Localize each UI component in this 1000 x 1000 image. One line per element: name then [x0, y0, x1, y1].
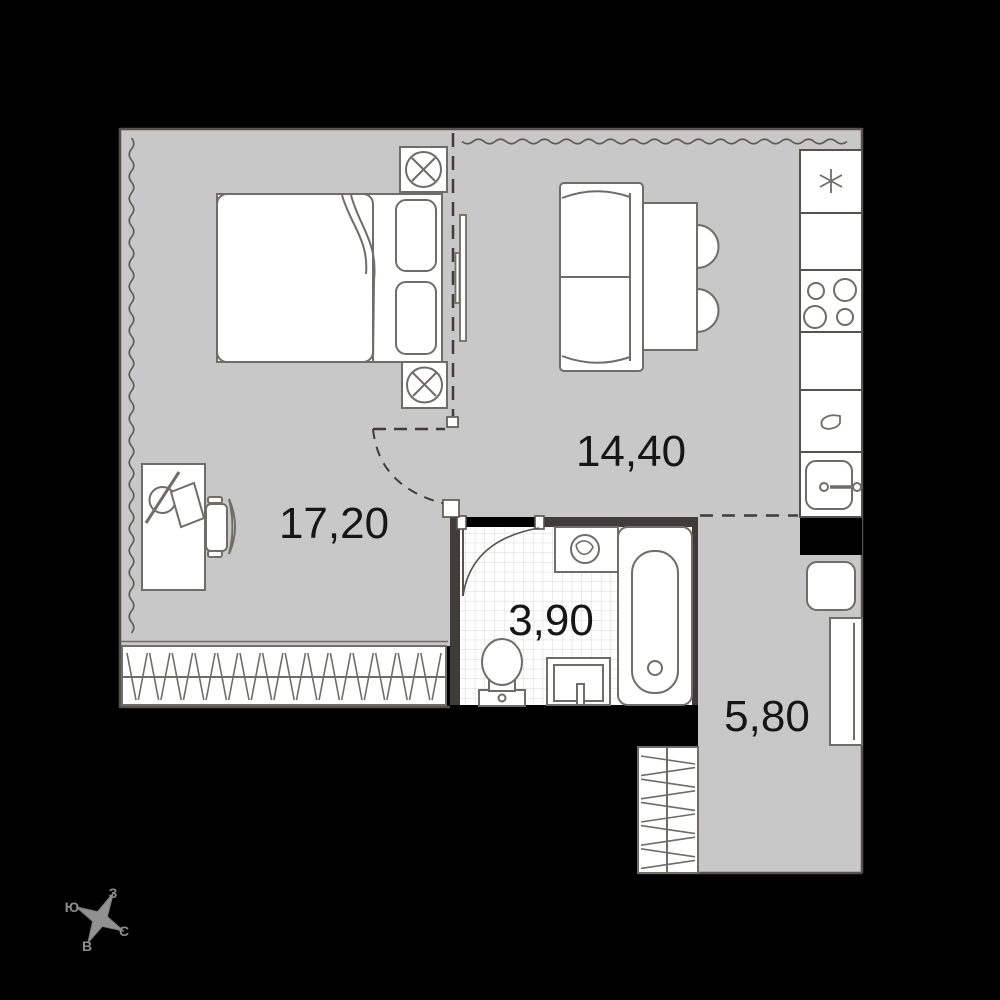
compass-west-label: З — [109, 885, 118, 901]
washing-machine-drum-icon — [571, 535, 599, 563]
hall-wardrobe — [830, 618, 862, 745]
cooktop — [800, 270, 862, 332]
bathtub — [618, 527, 692, 705]
room-label-bathroom: 3,90 — [508, 596, 594, 645]
nightstand-top — [400, 147, 447, 192]
floor-plan-drawing: 17,20 14,40 3,90 5,80 З Ю С В — [0, 0, 1000, 1000]
washing-machine — [555, 527, 618, 572]
compass-star-icon — [64, 880, 138, 955]
closet-hatched — [121, 642, 448, 706]
nightstand-bottom — [402, 362, 447, 408]
floor-plan-canvas: 17,20 14,40 3,90 5,80 З Ю С В — [0, 0, 1000, 1000]
dining-table — [643, 203, 697, 350]
counter-cabinet — [800, 332, 862, 390]
sofa — [560, 183, 643, 371]
desk — [142, 464, 205, 590]
room-label-bedroom-living: 17,20 — [279, 499, 389, 548]
bed — [217, 194, 442, 362]
compass-north-label: С — [119, 923, 129, 939]
hall-closet-hatched — [638, 747, 698, 873]
room-label-kitchen-living: 14,40 — [576, 427, 686, 476]
toilet — [479, 639, 525, 706]
compass-east-label: В — [82, 938, 92, 954]
counter-cabinet — [800, 390, 862, 452]
compass-rose: З Ю С В — [64, 880, 138, 955]
vanity-sink — [547, 658, 610, 705]
compass-south-label: Ю — [65, 899, 79, 915]
stool — [807, 562, 855, 610]
counter-cabinet — [800, 213, 862, 270]
room-label-hallway: 5,80 — [724, 692, 810, 741]
